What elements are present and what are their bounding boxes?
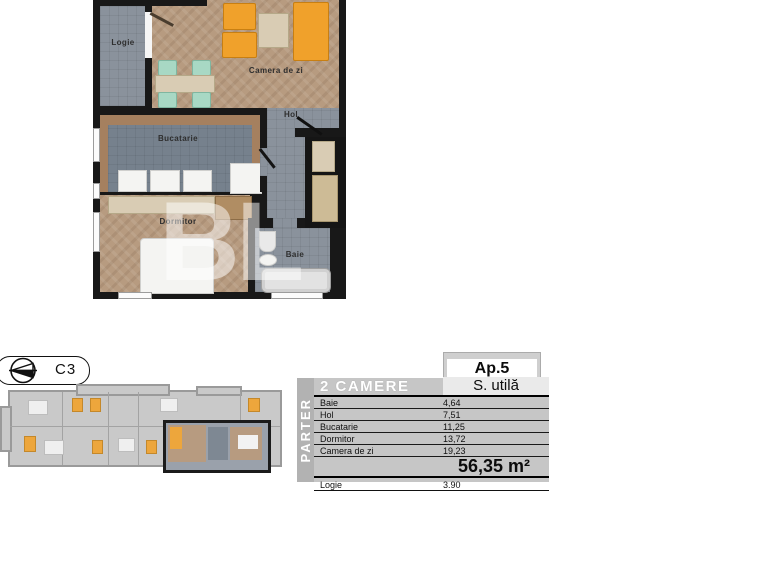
- overview-furniture: [92, 440, 103, 454]
- overview-bed: [44, 440, 64, 455]
- overview-wall: [108, 392, 109, 465]
- room-name: Bucatarie: [320, 422, 358, 432]
- overview-furniture: [72, 398, 83, 412]
- window: [93, 212, 100, 252]
- closet: [312, 141, 335, 172]
- overview-floor-plan: [8, 390, 282, 467]
- coffee-table: [258, 13, 289, 48]
- dining-chair: [158, 92, 177, 108]
- table-header-row: 2 CAMERE S. utilă: [314, 378, 549, 397]
- apartment-floor-plan: Logie Camera de zi Hol Bucatarie Dormito…: [93, 0, 346, 299]
- window: [93, 128, 100, 162]
- apartment-info-table: Ap.5 PARTER 2 CAMERE S. utilă Baie 4,64 …: [297, 352, 549, 482]
- window: [93, 183, 100, 199]
- overview-bed: [28, 400, 48, 415]
- room-name: Logie: [320, 480, 342, 490]
- overview-detail: [76, 384, 170, 396]
- kitchen-counter: [118, 170, 147, 192]
- wall: [93, 0, 207, 6]
- overview-highlighted-apartment: [163, 420, 271, 473]
- table-row: Bucatarie 11,25: [314, 421, 549, 433]
- room-area: 3.90: [443, 480, 461, 490]
- block-id: C3: [55, 361, 76, 378]
- dining-chair: [192, 60, 211, 76]
- room-area: 13,72: [443, 434, 466, 444]
- room-area: 19,23: [443, 446, 466, 456]
- floorplan-sheet: Logie Camera de zi Hol Bucatarie Dormito…: [0, 0, 770, 578]
- overview-detail: [0, 406, 12, 452]
- usable-area-header: S. utilă: [443, 377, 549, 395]
- room-area: 7,51: [443, 410, 461, 420]
- watermark: BL: [159, 186, 300, 298]
- table-row: Baie 4,64: [314, 397, 549, 409]
- room-name: Camera de zi: [320, 446, 374, 456]
- floor-label: PARTER: [298, 398, 313, 462]
- north-arrow-icon: [3, 357, 49, 384]
- room-name: Dormitor: [320, 434, 355, 444]
- dining-chair: [158, 60, 177, 76]
- sofa: [293, 2, 329, 61]
- overview-bed: [160, 398, 178, 412]
- floor-strip: PARTER: [297, 378, 314, 482]
- window: [118, 292, 152, 299]
- area-table-panel: PARTER 2 CAMERE S. utilă Baie 4,64 Hol 7…: [297, 378, 549, 482]
- overview-detail: [238, 435, 258, 449]
- overview-furniture: [146, 440, 157, 454]
- total-area: 56,35 m²: [438, 456, 550, 477]
- closet: [312, 175, 338, 222]
- orientation-badge: C3: [0, 356, 90, 385]
- overview-furniture: [90, 398, 101, 412]
- room-area: 4,64: [443, 398, 461, 408]
- overview-detail: [208, 427, 228, 460]
- armchair: [223, 3, 256, 30]
- apartment-number-box: Ap.5: [443, 352, 541, 380]
- overview-detail: [170, 427, 182, 449]
- table-row: Logie 3.90: [314, 478, 549, 491]
- apartment-type: 2 CAMERE: [320, 378, 410, 395]
- overview-furniture: [248, 398, 260, 412]
- overview-bed: [118, 438, 135, 452]
- apartment-number: Ap.5: [447, 359, 537, 379]
- overview-furniture: [24, 436, 36, 452]
- room-name: Baie: [320, 398, 338, 408]
- area-table-body: 2 CAMERE S. utilă Baie 4,64 Hol 7,51 Buc…: [314, 378, 549, 482]
- dining-chair: [192, 92, 211, 108]
- table-row: Dormitor 13,72: [314, 433, 549, 445]
- room-name: Hol: [320, 410, 334, 420]
- armchair: [222, 32, 257, 58]
- dining-table: [155, 75, 215, 93]
- overview-wall: [138, 392, 139, 465]
- room-logie: [100, 6, 145, 106]
- room-area: 11,25: [443, 422, 465, 432]
- total-area-row: 56,35 m²: [314, 457, 549, 478]
- overview-detail: [196, 386, 242, 396]
- table-row: Hol 7,51: [314, 409, 549, 421]
- logie-door: [145, 12, 152, 58]
